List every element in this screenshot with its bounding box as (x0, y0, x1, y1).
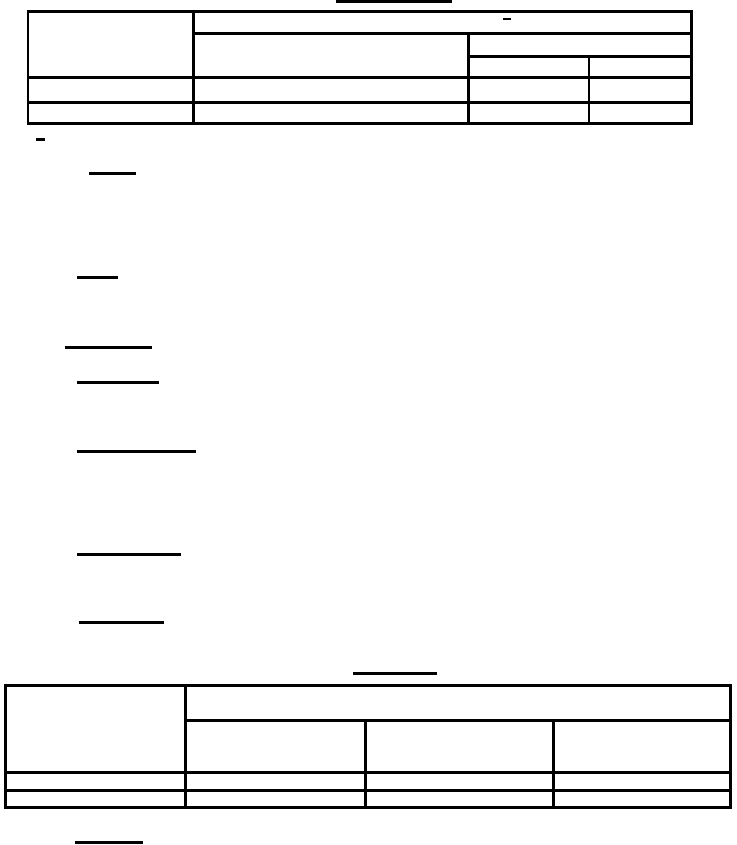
table1-header-dash-glyph (503, 18, 511, 20)
dash-glyphs-layer (0, 0, 737, 845)
section-dash-glyph (36, 138, 45, 141)
document-page (0, 0, 737, 845)
